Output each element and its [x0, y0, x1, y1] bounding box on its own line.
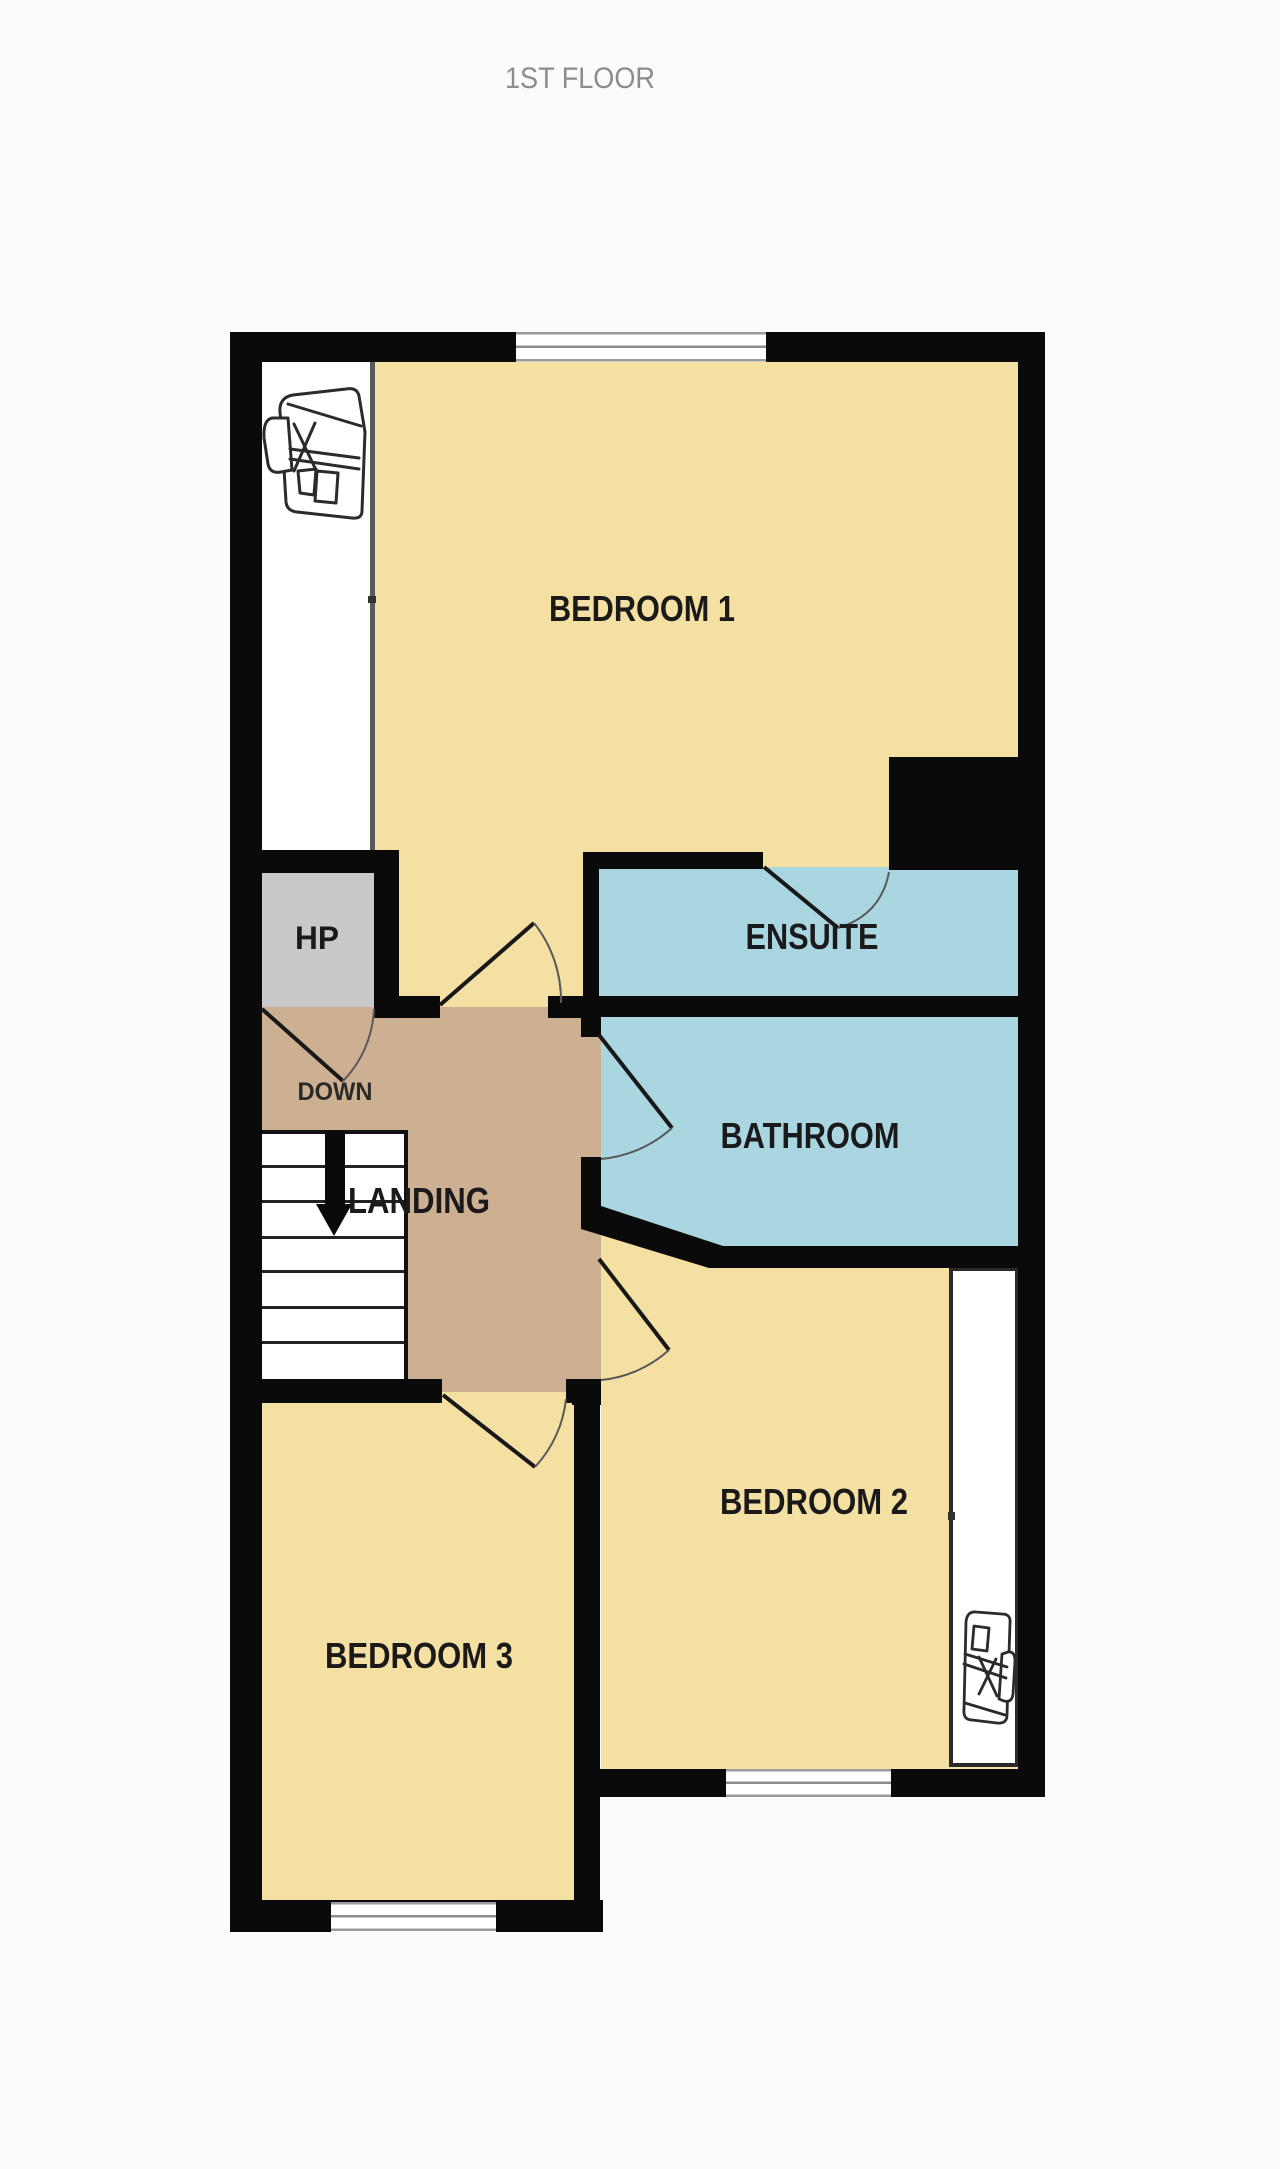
svg-text:LANDING: LANDING: [348, 1180, 490, 1221]
svg-text:DOWN: DOWN: [298, 1078, 373, 1106]
svg-text:BATHROOM: BATHROOM: [721, 1115, 900, 1156]
svg-text:1ST FLOOR: 1ST FLOOR: [505, 62, 655, 95]
svg-text:HP: HP: [295, 920, 339, 956]
svg-text:BEDROOM 2: BEDROOM 2: [720, 1481, 908, 1522]
svg-text:BEDROOM 3: BEDROOM 3: [325, 1635, 513, 1676]
svg-text:ENSUITE: ENSUITE: [746, 916, 879, 957]
svg-text:BEDROOM 1: BEDROOM 1: [549, 588, 735, 629]
